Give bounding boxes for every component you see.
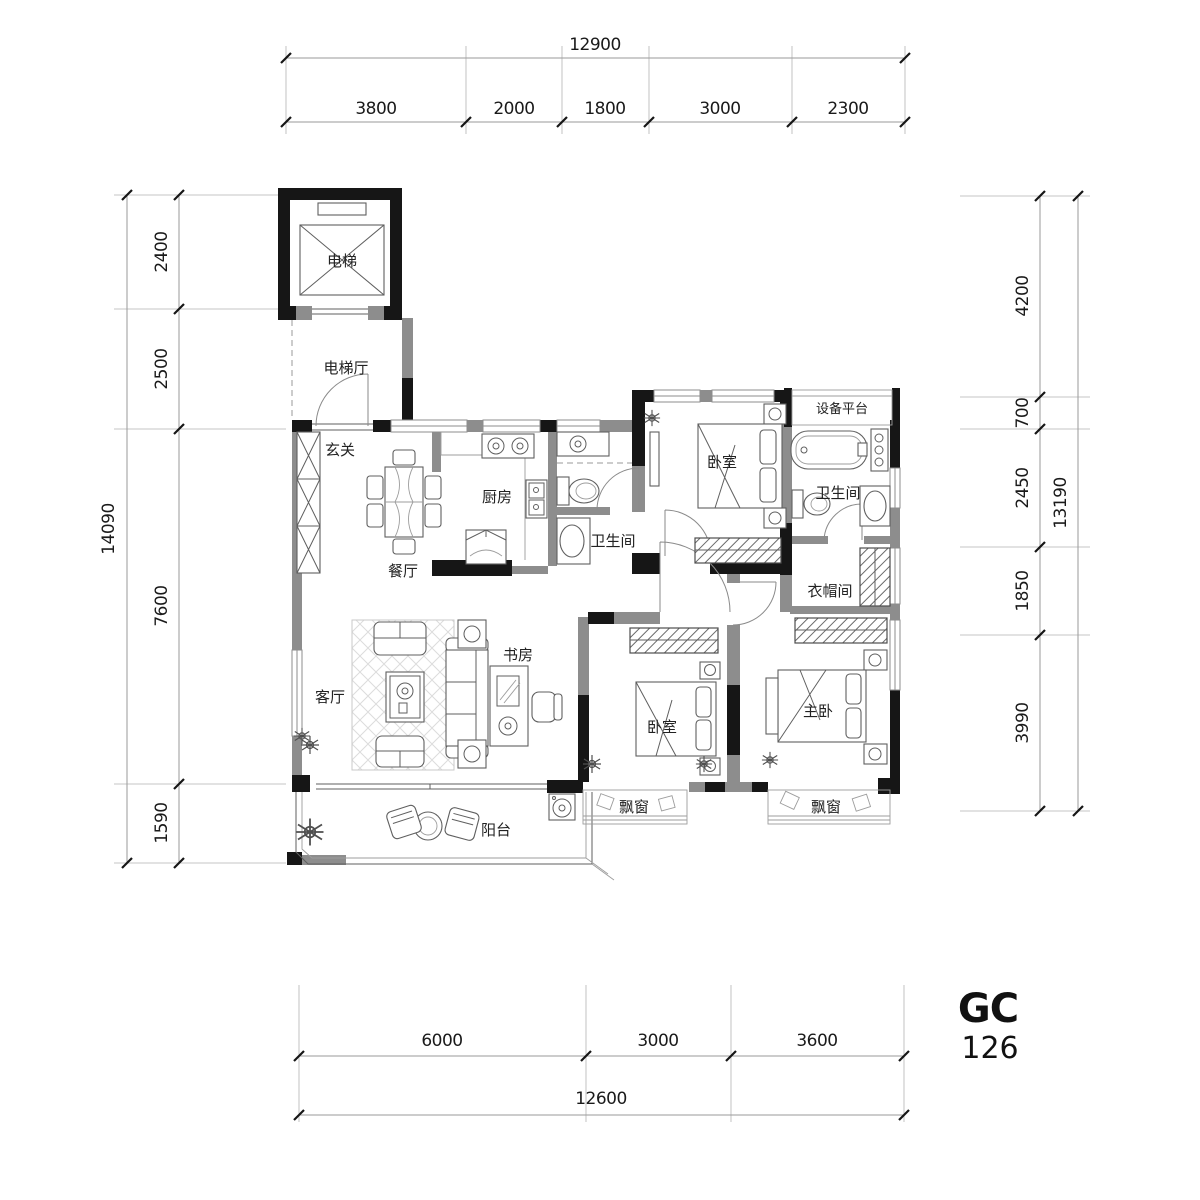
floor-plan-page: 12900 3800 2000 1800 3000 2300 14090 240… [0,0,1200,1200]
room-label-bath-master: 卫生间 [815,484,860,502]
bedroom-south: 卧室 [630,628,720,775]
dim-right-seg-1: 700 [1013,398,1033,429]
room-label-entry: 玄关 [325,441,355,459]
bay-window-2: 飘窗 [768,790,890,824]
dimension-bottom: 6000 3000 3600 12600 [294,985,909,1122]
dim-left-seg-3: 1590 [152,802,172,843]
equipment-platform: 设备平台 [792,390,892,425]
plan-code: GC [958,986,1018,1032]
cloakroom: 衣帽间 [807,548,890,606]
dim-right-seg-0: 4200 [1013,275,1033,316]
dimension-right: 13190 4200 700 2450 1850 3990 [960,191,1090,816]
room-label-master-bedroom: 主卧 [803,702,833,720]
dim-top-seg-0: 3800 [355,99,396,119]
dim-left-seg-0: 2400 [152,231,172,272]
room-label-bay-window-1: 飘窗 [619,798,649,816]
plan-model: 126 [961,1031,1018,1066]
dim-top-overall: 12900 [569,35,621,55]
dim-right-seg-2: 2450 [1013,467,1033,508]
room-label-dining: 餐厅 [388,562,418,580]
room-label-equipment-platform: 设备平台 [816,401,868,417]
dim-right-seg-4: 3990 [1013,702,1033,743]
dim-bottom-seg-2: 3600 [796,1031,837,1051]
title-block: GC 126 [958,986,1019,1066]
room-label-bedroom-north: 卧室 [707,453,737,471]
master-bedroom: 主卧 [766,618,887,764]
bathroom-master: 卫生间 [791,429,890,526]
room-label-balcony: 阳台 [481,821,511,839]
dimension-top: 12900 3800 2000 1800 3000 2300 [281,35,910,134]
room-label-elevator: 电梯 [327,252,357,270]
living-room: 客厅 [315,620,488,770]
dim-left-overall: 14090 [99,503,119,555]
dim-right-seg-3: 1850 [1013,570,1033,611]
room-label-cloakroom: 衣帽间 [807,582,852,600]
dim-left-seg-1: 2500 [152,348,172,389]
room-label-bay-window-2: 飘窗 [811,798,841,816]
dim-bottom-seg-1: 3000 [637,1031,678,1051]
dining-room: 餐厅 [367,450,441,580]
dim-bottom-overall: 12600 [575,1089,627,1109]
dim-top-seg-4: 2300 [827,99,868,119]
dim-right-overall: 13190 [1051,477,1071,529]
room-label-study: 书房 [503,646,533,664]
bay-window-1: 飘窗 [583,790,687,824]
bedroom-north: 卧室 [650,404,786,563]
dim-bottom-seg-0: 6000 [421,1031,462,1051]
kitchen: 厨房 [441,432,547,564]
elevator-hall: 电梯厅 玄关 [292,320,369,573]
room-label-elevator-hall: 电梯厅 [323,359,368,377]
dim-top-seg-3: 3000 [699,99,740,119]
floor-plan-svg: 12900 3800 2000 1800 3000 2300 14090 240… [0,0,1200,1200]
room-label-bath-main: 卫生间 [590,532,635,550]
elevator-shaft: 电梯 [278,188,402,320]
room-label-living: 客厅 [315,688,345,706]
dim-top-seg-1: 2000 [493,99,534,119]
dim-top-seg-2: 1800 [584,99,625,119]
room-label-bedroom-south: 卧室 [647,718,677,736]
bathroom-main: 卫生间 [557,432,636,564]
study: 书房 [490,646,562,746]
dimension-left: 14090 2400 2500 7600 1590 [99,190,286,868]
room-label-kitchen: 厨房 [482,488,512,506]
dim-left-seg-2: 7600 [152,585,172,626]
